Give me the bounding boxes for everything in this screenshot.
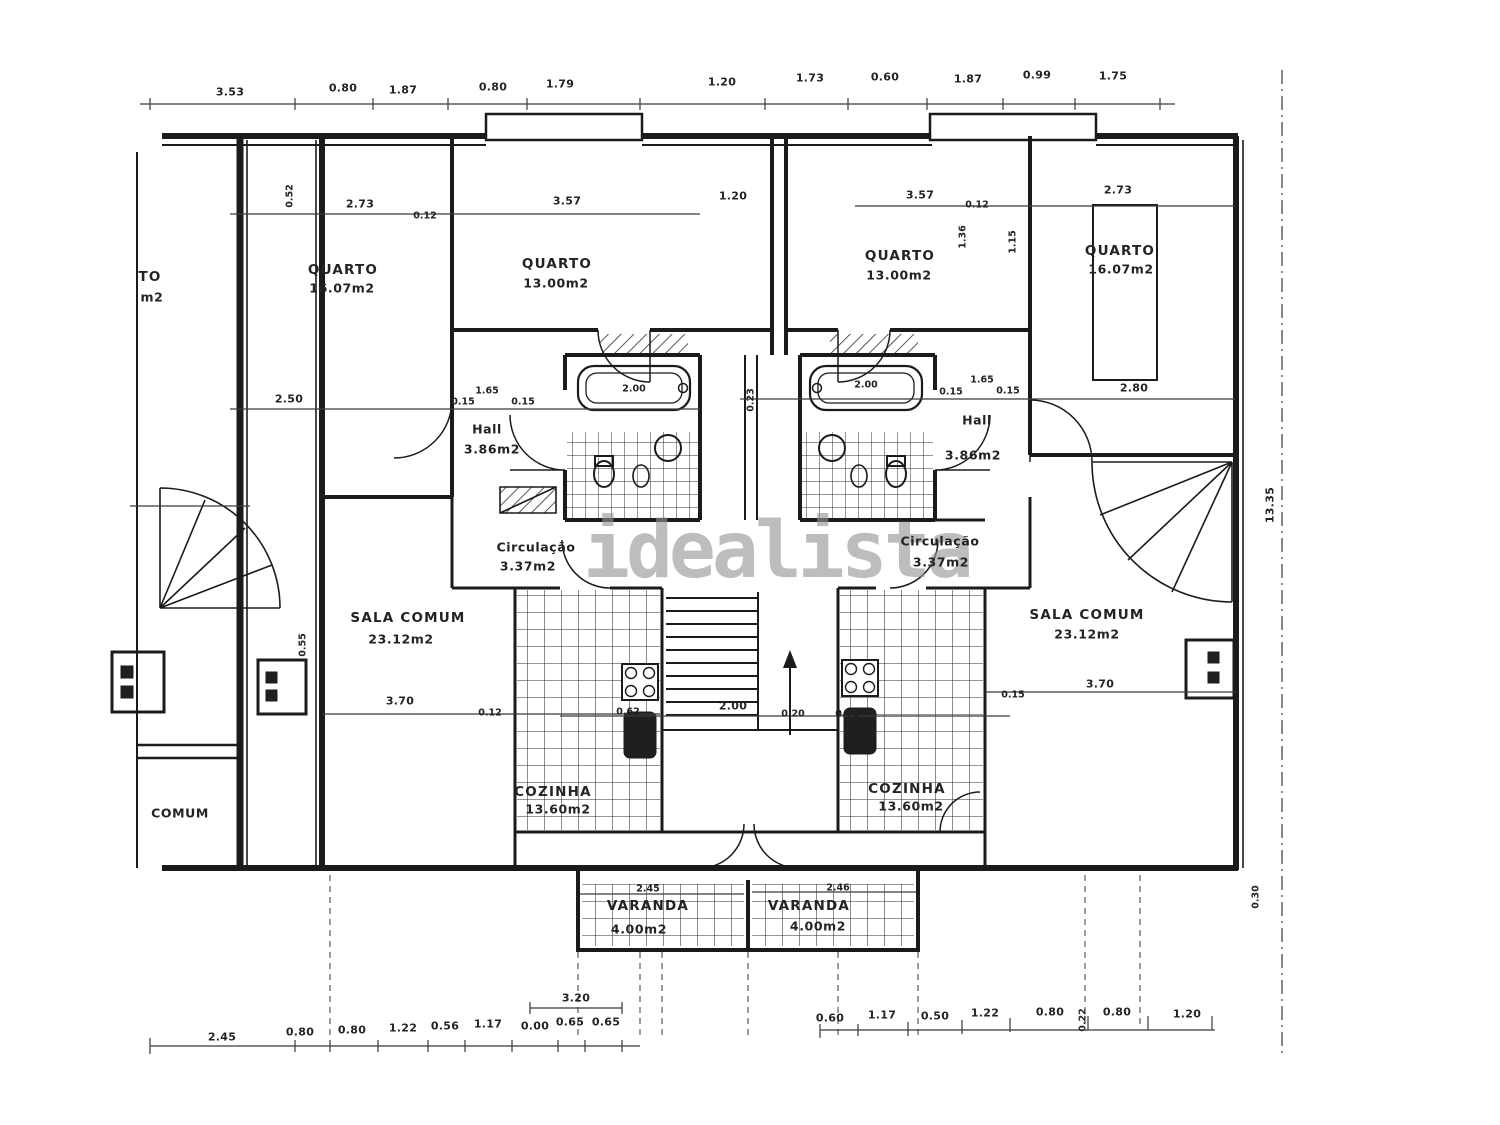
room-area-circulacao-left: 3.37m2: [500, 559, 556, 574]
dim-bottom-2: 0.80: [338, 1024, 366, 1037]
room-label-sala-left: SALA COMUM: [350, 610, 465, 626]
room-area-quarto-right-inner: 13.00m2: [866, 268, 931, 283]
room-label-cozinha-right: COZINHA: [868, 781, 946, 797]
stair-direction-arrow: [783, 650, 797, 668]
dim-tub-right: 2.00: [854, 380, 877, 391]
dim-top-7: 0.60: [871, 71, 899, 84]
room-area-sala-left: 23.12m2: [368, 632, 433, 647]
dim-lower-6: 0.15: [1001, 690, 1024, 701]
dim-mid-left: 2.50: [275, 393, 303, 406]
dim-top-4: 1.79: [546, 78, 574, 91]
room-label-partial-3: COMUM: [151, 806, 209, 821]
dim-rot-2: 1.15: [1008, 230, 1019, 253]
dim-bottom-7: 0.65: [556, 1016, 584, 1029]
dim-top-8: 1.87: [954, 73, 982, 86]
dim-sala-right: 3.70: [1086, 678, 1114, 691]
room-area-quarto-left-inner: 13.00m2: [523, 276, 588, 291]
dim-top-3: 0.80: [479, 81, 507, 94]
room-label-hall-right: Hall: [962, 413, 992, 428]
dim-upper-right-2: 2.73: [1104, 184, 1132, 197]
dim-top-2: 1.87: [389, 84, 417, 97]
dim-lower-5: 0.62: [835, 709, 858, 720]
dim-top-9: 0.99: [1023, 69, 1051, 82]
room-area-cozinha-left: 13.60m2: [525, 802, 590, 817]
dim-bottom-8: 0.65: [592, 1016, 620, 1029]
room-label-partial-2: m2: [141, 290, 164, 305]
dim-bottom-15: 1.20: [1173, 1008, 1201, 1021]
room-label-quarto-right-inner: QUARTO: [865, 248, 935, 264]
room-label-quarto-right-outer: QUARTO: [1085, 243, 1155, 259]
dim-lower-3: 2.00: [719, 700, 747, 713]
dim-bottom-9: 0.60: [816, 1012, 844, 1025]
dim-hall-right-3: 0.15: [996, 386, 1019, 397]
dim-wardrobe: 2.80: [1120, 382, 1148, 395]
dim-sala-left: 3.70: [386, 695, 414, 708]
dim-balcony-left: 2.45: [636, 884, 659, 895]
closet-hatch-right: [830, 334, 918, 354]
dim-bottom-11: 0.50: [921, 1010, 949, 1023]
dim-bottom-10: 1.17: [868, 1009, 896, 1022]
dim-center-gap: 0.23: [746, 388, 757, 411]
dim-bottom-6: 0.00: [521, 1020, 549, 1033]
dim-bottom-0: 2.45: [208, 1031, 236, 1044]
dim-right-edge: 13.35: [1264, 487, 1277, 523]
closet-hatch-left: [600, 334, 688, 354]
dim-bottom-4: 0.56: [431, 1020, 459, 1033]
floor-plan-scan: idealista TO m2 COMUM QUARTO 16.07m2 QUA…: [0, 0, 1500, 1125]
room-area-cozinha-right: 13.60m2: [878, 799, 943, 814]
dim-top-6: 1.73: [796, 72, 824, 85]
room-label-varanda-left: VARANDA: [607, 898, 689, 914]
dim-upper-right-1: 0.12: [965, 200, 988, 211]
dim-bottom-12: 1.22: [971, 1007, 999, 1020]
dim-upper-right-0: 3.57: [906, 189, 934, 202]
dim-bottom-1: 0.80: [286, 1026, 314, 1039]
room-label-sala-right: SALA COMUM: [1029, 607, 1144, 623]
dim-upper-left-2: 3.57: [553, 195, 581, 208]
dim-balcony-right: 2.46: [826, 883, 849, 894]
dim-lower-2: 0.62: [616, 707, 639, 718]
dim-hall-right-2: 1.65: [970, 375, 993, 386]
dim-top-0: 3.53: [216, 86, 244, 99]
room-label-circulacao-right: Circulação: [900, 534, 979, 549]
room-label-quarto-left-inner: QUARTO: [522, 256, 592, 272]
dim-top-10: 1.75: [1099, 70, 1127, 83]
dim-hall-left-1: 0.15: [451, 397, 474, 408]
room-area-sala-right: 23.12m2: [1054, 627, 1119, 642]
dim-hall-right-1: 0.15: [939, 387, 962, 398]
dim-hall-left-2: 1.65: [475, 386, 498, 397]
idealista-watermark: idealista: [583, 512, 970, 590]
room-label-varanda-right: VARANDA: [768, 898, 850, 914]
dim-bottom-5: 1.17: [474, 1018, 502, 1031]
dim-right-low: 0.30: [1251, 885, 1262, 908]
room-area-varanda-left: 4.00m2: [611, 922, 667, 937]
dim-upper-left-1: 0.12: [413, 211, 436, 222]
room-label-hall-left: Hall: [472, 422, 502, 437]
wardrobe-right-quarto: [1093, 205, 1157, 380]
dim-upper-left-0: 2.73: [346, 198, 374, 211]
dim-rot-1: 1.36: [958, 225, 969, 248]
room-area-hall-right: 3.86m2: [945, 448, 1001, 463]
dim-balcony-center: 3.20: [562, 992, 590, 1005]
dim-rot-0: 0.52: [285, 184, 296, 207]
balcony-left-tiles: [582, 884, 744, 946]
dim-top-5: 1.20: [708, 76, 736, 89]
dim-bottom-3: 1.22: [389, 1022, 417, 1035]
dim-top-1: 0.80: [329, 82, 357, 95]
dim-tub-left: 2.00: [622, 384, 645, 395]
dim-upper-center: 1.20: [719, 190, 747, 203]
dim-bottom-rot: 0.22: [1078, 1008, 1089, 1031]
room-area-varanda-right: 4.00m2: [790, 919, 846, 934]
room-label-quarto-left-outer: QUARTO: [308, 262, 378, 278]
room-area-hall-left: 3.86m2: [464, 442, 520, 457]
dim-lower-4: 0.20: [781, 709, 804, 720]
room-label-circulacao-left: Circulação: [496, 540, 575, 555]
dim-bottom-13: 0.80: [1036, 1006, 1064, 1019]
dim-hall-left-3: 0.15: [511, 397, 534, 408]
room-area-quarto-left-outer: 16.07m2: [309, 281, 374, 296]
room-label-cozinha-left: COZINHA: [514, 784, 592, 800]
dim-left-rot: 0.55: [298, 633, 309, 656]
room-label-partial-1: TO: [138, 269, 161, 285]
room-area-circulacao-right: 3.37m2: [913, 555, 969, 570]
dim-bottom-14: 0.80: [1103, 1006, 1131, 1019]
dim-lower-1: 0.12: [478, 708, 501, 719]
room-area-quarto-right-outer: 16.07m2: [1088, 262, 1153, 277]
